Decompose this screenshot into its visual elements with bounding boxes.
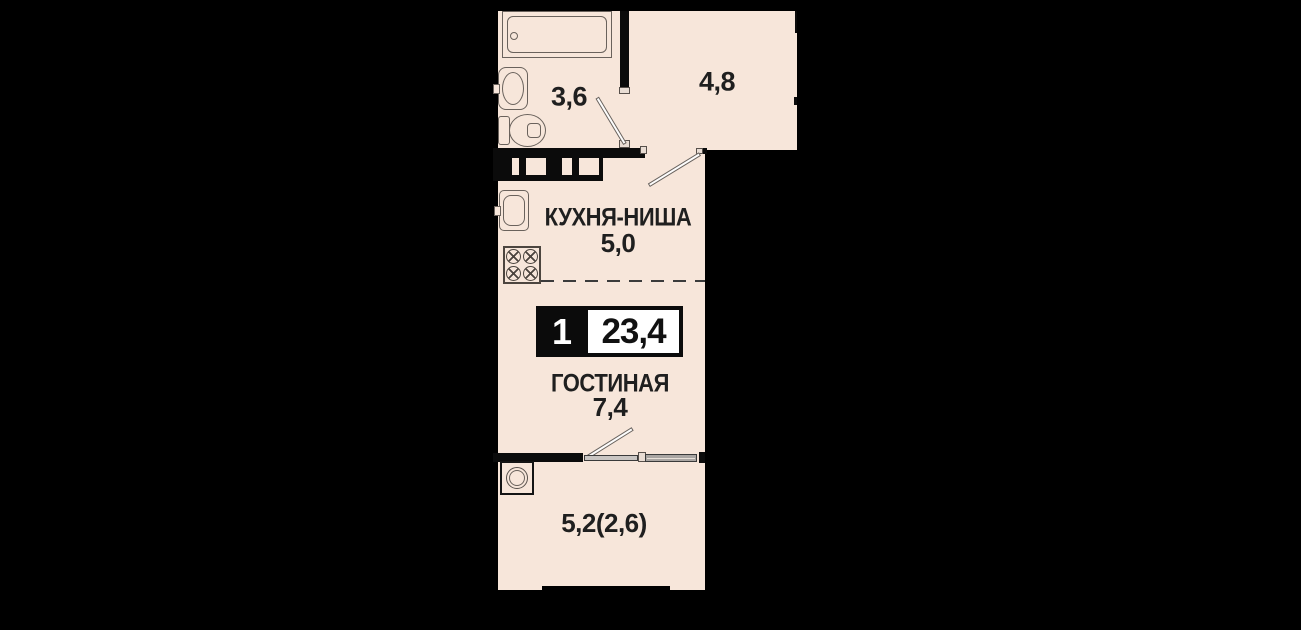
living-area-label: 7,4 <box>593 394 628 420</box>
entrance-wall-notch <box>795 11 797 33</box>
kitchen-niche-dashed-divider <box>541 280 705 282</box>
balcony-window-line <box>647 458 695 459</box>
bathtub-drain <box>510 32 518 40</box>
unit-badge: 1 23,4 <box>536 306 683 357</box>
kitchen-doorframe-left <box>640 146 647 154</box>
kitchen-sink-tap <box>494 206 501 216</box>
stove-burner <box>506 249 521 264</box>
bathroom-area-label: 3,6 <box>551 84 587 111</box>
stove-burner <box>523 249 538 264</box>
kitchen-area-label: 5,0 <box>601 230 636 256</box>
balcony-window <box>645 454 697 462</box>
entrance-wall-notch <box>794 97 797 105</box>
floor-plan-canvas: 1 23,4 3,6 4,8 КУХНЯ-НИША 5,0 ГОСТИНАЯ 7… <box>0 0 1301 630</box>
stove-burner <box>523 266 538 281</box>
kitchen-sink-basin <box>503 195 525 226</box>
washing-machine-drum-inner <box>509 470 525 486</box>
shaft-opening <box>562 158 572 175</box>
bathtub-basin <box>507 16 607 53</box>
toilet-detail <box>527 123 541 138</box>
bathroom-sink-tap <box>493 84 500 94</box>
bathroom-doorframe-top <box>619 87 630 94</box>
shaft-opening <box>512 158 519 175</box>
balcony-edge-left <box>498 586 542 590</box>
shaft-opening <box>526 158 546 175</box>
bathroom-sink-basin <box>502 72 524 105</box>
unit-rooms-count: 1 <box>536 306 588 357</box>
stove-burner <box>506 266 521 281</box>
balcony-edge-right <box>670 586 705 590</box>
balcony-area-label: 5,2(2,6) <box>561 510 647 536</box>
shaft-opening <box>579 158 599 175</box>
unit-total-area: 23,4 <box>588 310 679 353</box>
kitchen-name-label: КУХНЯ-НИША <box>545 206 692 231</box>
hallway-area-label: 4,8 <box>699 69 735 96</box>
wall-balcony-right-stub <box>699 452 705 463</box>
wall-bathroom-hallway <box>620 11 629 88</box>
balcony-door-leaf <box>584 455 638 461</box>
